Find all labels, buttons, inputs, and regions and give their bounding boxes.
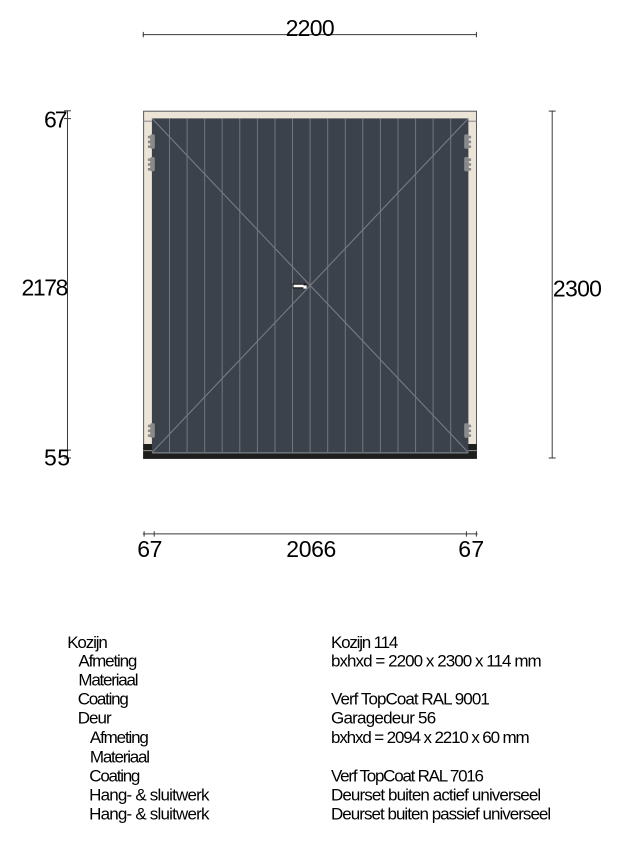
svg-text:bxhxd = 2200 x 2300 x 114 mm: bxhxd = 2200 x 2300 x 114 mm [331, 652, 542, 671]
svg-text:2200: 2200 [286, 15, 334, 41]
svg-text:2300: 2300 [553, 275, 601, 301]
svg-text:Afmeting: Afmeting [78, 652, 137, 671]
svg-text:Deur: Deur [78, 709, 112, 728]
svg-text:Kozijn: Kozijn [67, 633, 108, 652]
svg-text:55: 55 [44, 445, 71, 471]
svg-text:67: 67 [137, 536, 162, 562]
svg-text:Verf TopCoat RAL 7016: Verf TopCoat RAL 7016 [331, 766, 484, 785]
svg-text:Garagedeur 56: Garagedeur 56 [331, 709, 436, 728]
svg-text:Materiaal: Materiaal [78, 670, 138, 689]
svg-text:Coating: Coating [89, 766, 140, 785]
svg-text:Verf TopCoat RAL 9001: Verf TopCoat RAL 9001 [331, 690, 490, 709]
svg-text:Hang- & sluitwerk: Hang- & sluitwerk [89, 786, 210, 805]
svg-text:Materiaal: Materiaal [90, 747, 150, 766]
svg-text:Hang- & sluitwerk: Hang- & sluitwerk [89, 805, 210, 824]
svg-text:67: 67 [458, 536, 484, 562]
svg-text:Kozijn 114: Kozijn 114 [331, 633, 398, 652]
svg-text:bxhxd = 2094 x 2210 x 60 mm: bxhxd = 2094 x 2210 x 60 mm [331, 728, 530, 747]
svg-text:2178: 2178 [22, 274, 68, 300]
svg-text:Afmeting: Afmeting [90, 728, 149, 747]
svg-text:67: 67 [44, 107, 67, 133]
svg-text:2066: 2066 [286, 536, 336, 562]
svg-text:Deurset buiten passief univers: Deurset buiten passief universeel [331, 805, 551, 824]
svg-text:Deurset buiten actief universe: Deurset buiten actief universeel [331, 786, 541, 805]
svg-text:Coating: Coating [78, 690, 129, 709]
